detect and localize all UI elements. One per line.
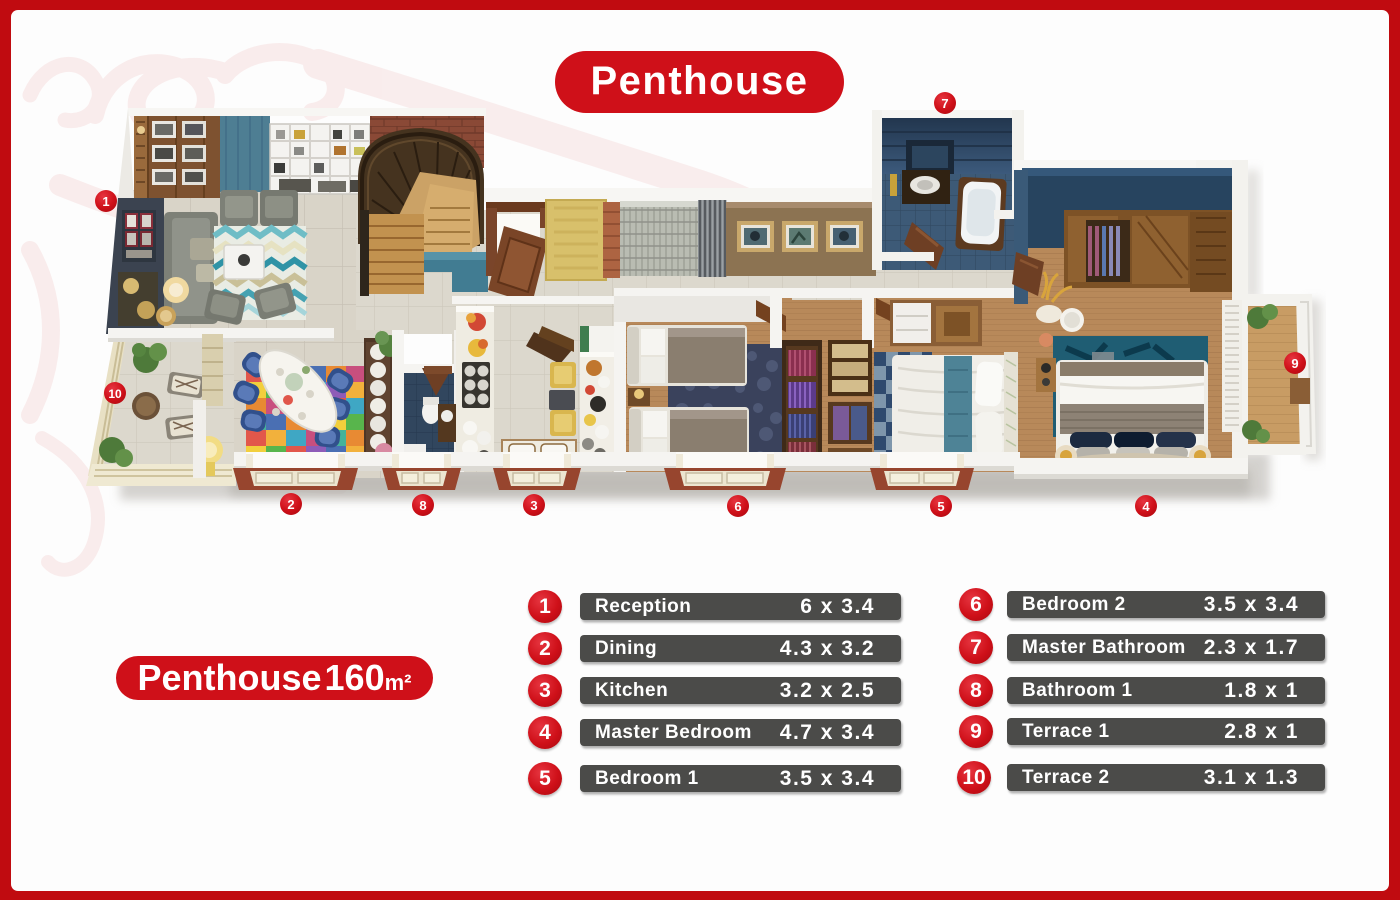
svg-text:3: 3: [530, 498, 537, 513]
svg-text:8: 8: [419, 498, 426, 513]
svg-text:5: 5: [937, 499, 944, 514]
svg-text:1: 1: [102, 194, 109, 209]
svg-text:4: 4: [1142, 499, 1150, 514]
svg-text:6: 6: [734, 499, 741, 514]
svg-text:7: 7: [941, 96, 948, 111]
svg-text:10: 10: [108, 387, 122, 401]
svg-text:9: 9: [1291, 356, 1298, 371]
svg-text:2: 2: [287, 497, 294, 512]
